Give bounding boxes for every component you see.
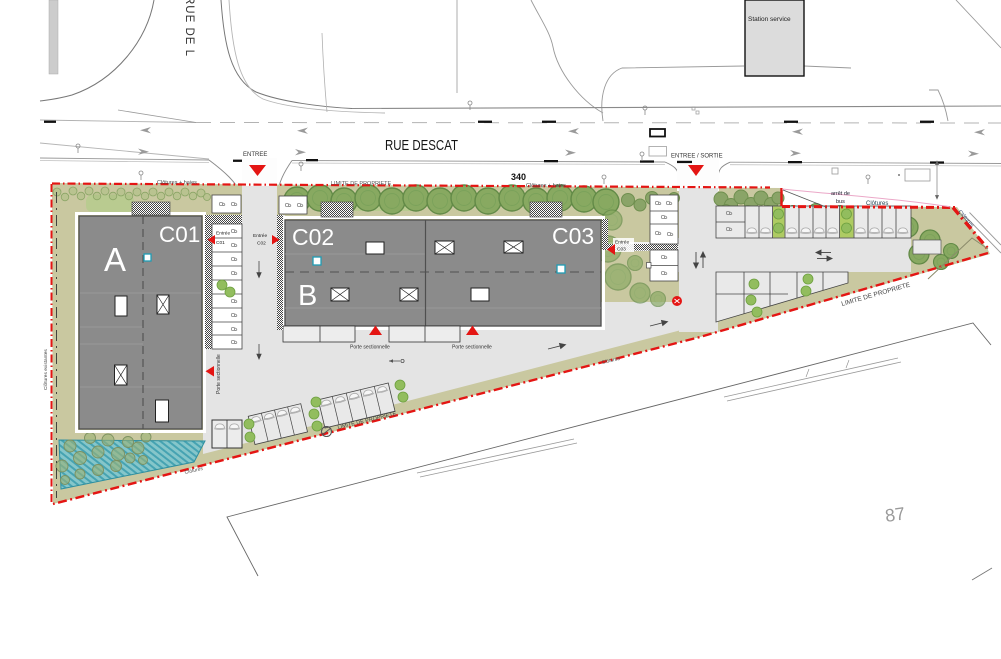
svg-text:Entrée: Entrée xyxy=(216,231,230,237)
svg-text:Clôtures + haies: Clôtures + haies xyxy=(157,180,197,186)
svg-text:bus: bus xyxy=(836,199,845,205)
svg-text:Porte sectionnelle: Porte sectionnelle xyxy=(350,345,390,351)
svg-text:87: 87 xyxy=(884,503,907,526)
svg-text:Entrée: Entrée xyxy=(615,240,629,246)
svg-text:Entrée: Entrée xyxy=(253,233,267,239)
svg-text:C02: C02 xyxy=(257,241,266,247)
svg-text:Porte sectionnelle: Porte sectionnelle xyxy=(452,345,492,351)
svg-text:340: 340 xyxy=(511,172,526,182)
svg-text:arrêt de: arrêt de xyxy=(831,191,850,197)
svg-text:C02: C02 xyxy=(292,224,334,250)
svg-text:ENTREE: ENTREE xyxy=(243,152,267,158)
svg-text:ENTREE / SORTIE: ENTREE / SORTIE xyxy=(671,154,723,160)
svg-text:C01: C01 xyxy=(159,222,200,247)
svg-text:LIMITE DE PROPRIETE: LIMITE DE PROPRIETE xyxy=(331,181,392,187)
svg-text:Clôtures + haies: Clôtures + haies xyxy=(526,183,566,189)
svg-text:A: A xyxy=(104,241,126,278)
svg-text:Porte sectionnelle: Porte sectionnelle xyxy=(216,354,222,394)
svg-text:RUE DE L: RUE DE L xyxy=(183,0,195,57)
svg-text:Clôtures: Clôtures xyxy=(866,201,888,207)
svg-text:C03: C03 xyxy=(617,247,626,253)
svg-text:B: B xyxy=(298,280,317,312)
svg-text:C01: C01 xyxy=(216,240,225,246)
svg-text:C03: C03 xyxy=(552,223,594,249)
svg-text:Clôtures existantes: Clôtures existantes xyxy=(43,349,49,390)
svg-text:RUE DESCAT: RUE DESCAT xyxy=(385,137,458,154)
svg-text:Station service: Station service xyxy=(748,16,791,23)
